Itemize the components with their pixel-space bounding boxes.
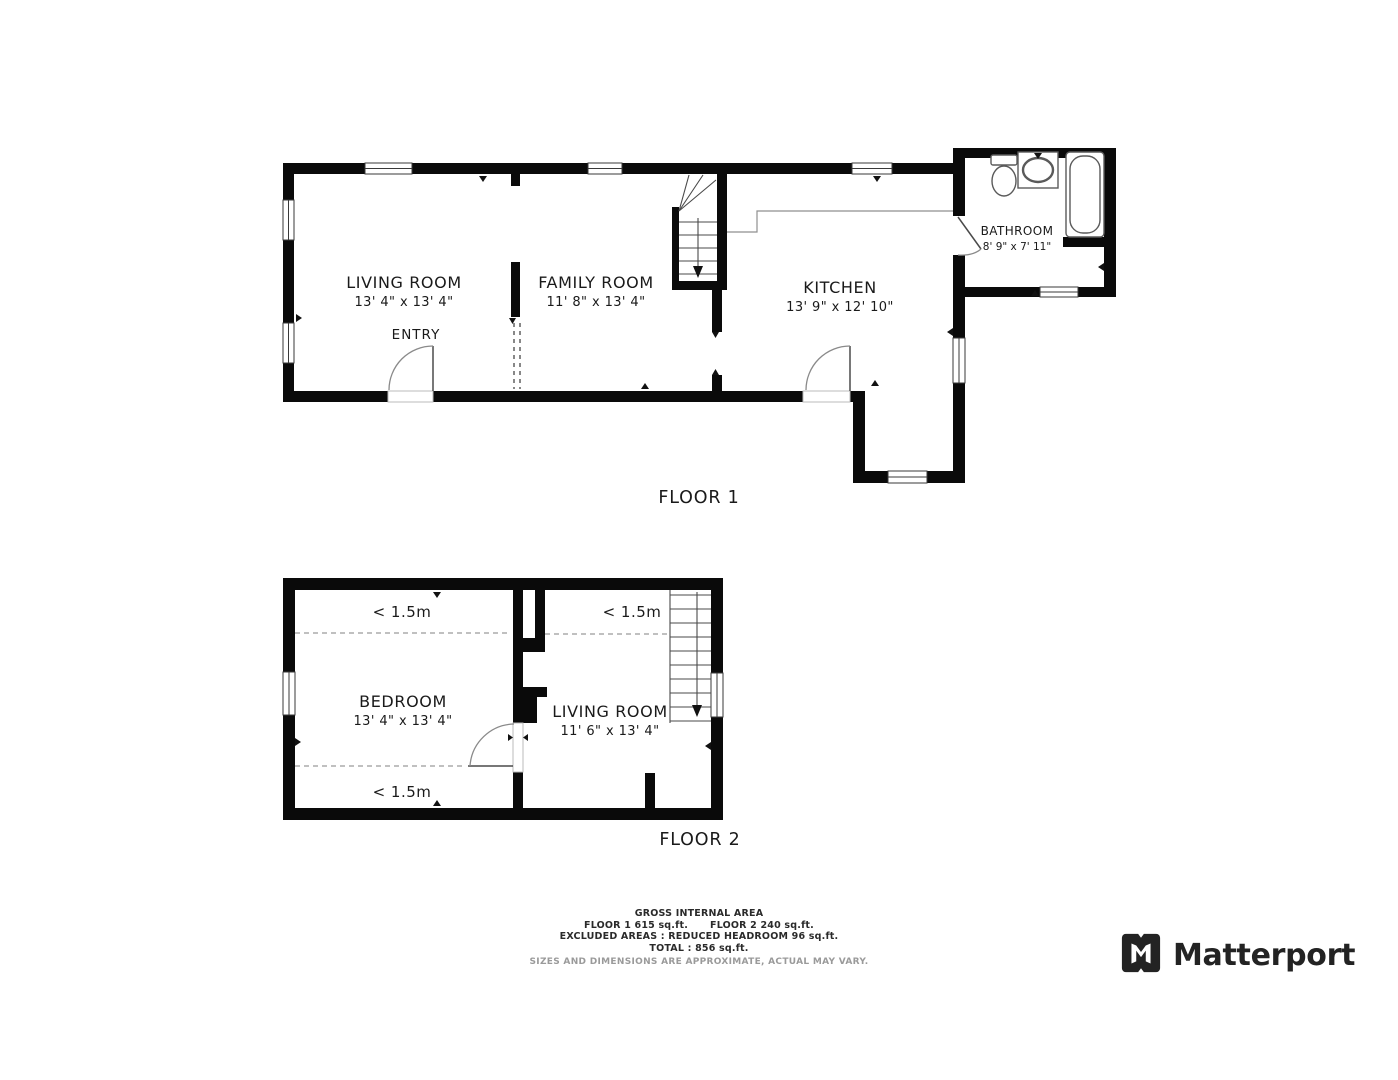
stairs-down-arrow: [693, 266, 703, 278]
floor-areas-line: FLOOR 1 615 sq.ft.FLOOR 2 240 sq.ft.: [0, 920, 1398, 932]
toilet-icon: [991, 155, 1017, 196]
floor1-walls: [283, 148, 1116, 483]
upper-floor-outline: [727, 211, 953, 232]
floor1-area: FLOOR 1 615 sq.ft.: [584, 920, 688, 931]
bathroom-dims: 8' 9" x 7' 11": [983, 241, 1051, 253]
floor2-stairs: [670, 590, 711, 723]
matterport-logo-icon: [1120, 932, 1162, 978]
bedroom-dims: 13' 4" x 13' 4": [354, 714, 453, 729]
bathtub-icon: [1066, 152, 1104, 237]
headroom-note-bottom-left: < 1.5m: [373, 783, 432, 801]
floor2-title: FLOOR 2: [659, 830, 740, 850]
living-room-label: LIVING ROOM: [346, 273, 461, 292]
floor1-title: FLOOR 1: [658, 488, 739, 508]
matterport-brand: Matterport: [1120, 932, 1355, 978]
floor2-plan: BEDROOM 13' 4" x 13' 4" LIVING ROOM 11' …: [283, 578, 741, 850]
floor2-headroom-dashes: [295, 633, 668, 766]
sink-icon: [1018, 152, 1058, 188]
floor2-area: FLOOR 2 240 sq.ft.: [710, 920, 814, 931]
family-room-dims: 11' 8" x 13' 4": [547, 295, 646, 310]
living-room2-label: LIVING ROOM: [552, 702, 667, 721]
floor2-door: [468, 723, 528, 772]
floor1-plan: LIVING ROOM 13' 4" x 13' 4" ENTRY FAMILY…: [283, 148, 1116, 508]
bathroom-label: BATHROOM: [981, 224, 1054, 238]
stairs-down-arrow: [692, 705, 702, 717]
living-room2-dims: 11' 6" x 13' 4": [561, 724, 660, 739]
floor-plan-page: LIVING ROOM 13' 4" x 13' 4" ENTRY FAMILY…: [0, 0, 1398, 1080]
kitchen-label: KITCHEN: [803, 278, 877, 297]
kitchen-dims: 13' 9" x 12' 10": [786, 300, 894, 315]
floor1-stairs: [679, 175, 717, 278]
family-room-dashed-divider: [514, 323, 520, 389]
matterport-wordmark: Matterport: [1173, 938, 1355, 973]
headroom-note-top-left: < 1.5m: [373, 603, 432, 621]
gross-internal-area-title: GROSS INTERNAL AREA: [0, 908, 1398, 920]
entry-label: ENTRY: [392, 327, 441, 343]
living-room-dims: 13' 4" x 13' 4": [355, 295, 454, 310]
bedroom-label: BEDROOM: [359, 692, 447, 711]
headroom-note-top-right: < 1.5m: [603, 603, 662, 621]
family-room-label: FAMILY ROOM: [538, 273, 654, 292]
